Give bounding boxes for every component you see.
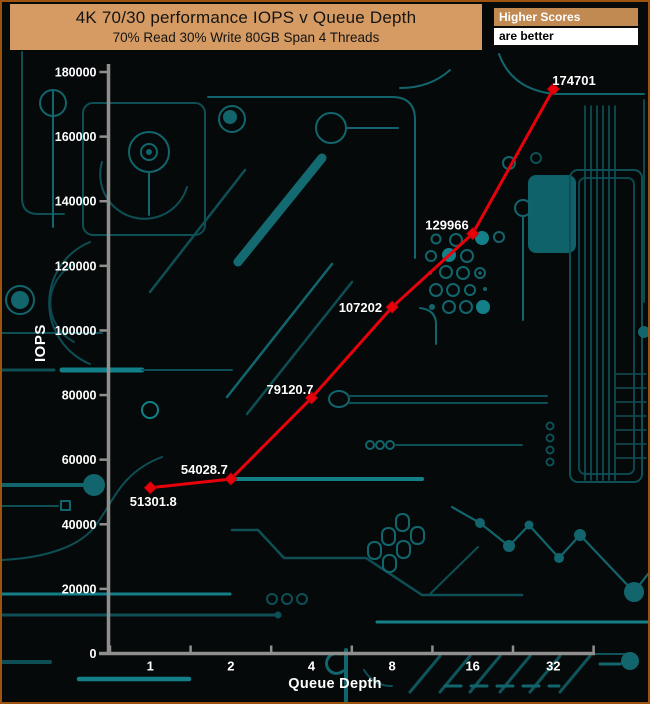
data-point-label: 129966 (425, 218, 468, 233)
y-tick-label: 180000 (55, 66, 97, 80)
x-tick-label: 8 (388, 659, 395, 674)
y-tick-label: 0 (90, 647, 97, 661)
data-point-label: 79120.7 (267, 382, 314, 397)
y-tick-label: 140000 (55, 195, 97, 209)
x-tick-label: 16 (465, 659, 479, 674)
y-tick-label: 100000 (55, 324, 97, 338)
x-tick-label: 4 (308, 659, 316, 674)
y-tick-label: 120000 (55, 259, 97, 273)
iops-line-chart: 0200004000060000800001000001200001400001… (2, 2, 648, 702)
y-tick-label: 60000 (62, 453, 97, 467)
x-tick-label: 1 (147, 659, 154, 674)
data-point-label: 51301.8 (130, 494, 177, 509)
data-point-label: 174701 (552, 73, 595, 88)
data-point-marker (144, 482, 156, 494)
y-tick-label: 80000 (62, 389, 97, 403)
x-tick-label: 2 (227, 659, 234, 674)
data-point-label: 54028.7 (181, 462, 228, 477)
screenshot-root: 4K 70/30 performance IOPS v Queue Depth … (0, 0, 650, 704)
y-tick-label: 40000 (62, 518, 97, 532)
series-line (150, 89, 553, 488)
y-tick-label: 160000 (55, 130, 97, 144)
x-tick-label: 32 (546, 659, 560, 674)
y-tick-label: 20000 (62, 582, 97, 596)
data-point-label: 107202 (339, 300, 382, 315)
